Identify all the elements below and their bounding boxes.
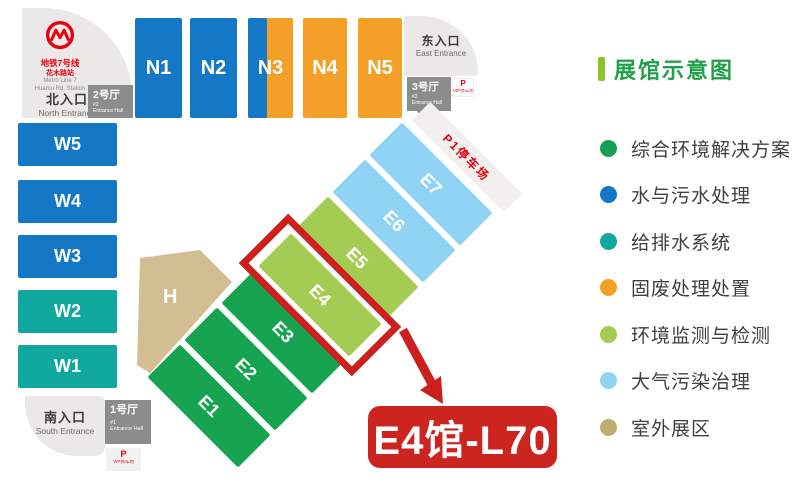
vip-parking-south: P VIP停车场 bbox=[106, 448, 141, 471]
legend-dot bbox=[600, 140, 617, 157]
legend-dot bbox=[600, 279, 617, 296]
highlight-label: E4馆-L70 bbox=[368, 406, 557, 468]
hall-n3: N3 bbox=[248, 18, 293, 118]
entrance-hall-1: 1号厅 #1 Entrance Hall bbox=[105, 400, 151, 444]
legend-title-bar bbox=[598, 57, 605, 81]
entrance-hall-2: 2号厅 #2 Entrance Hall bbox=[88, 85, 133, 118]
legend-item: 给排水系统 bbox=[600, 226, 791, 256]
hall-n4: N4 bbox=[303, 18, 347, 118]
legend-title: 展馆示意图 bbox=[598, 53, 734, 85]
hall-w5: W5 bbox=[18, 123, 117, 166]
metro-line-name-en: Metro Line 7 bbox=[28, 78, 92, 86]
legend-dot bbox=[600, 233, 617, 250]
south-entrance-label: 南入口 South Entrance bbox=[25, 410, 105, 437]
legend-item: 室外展区 bbox=[600, 412, 791, 442]
legend-item: 综合环境解决方案 bbox=[600, 133, 791, 163]
hall-w3: W3 bbox=[18, 235, 117, 278]
legend-dot bbox=[600, 186, 617, 203]
legend-dot bbox=[600, 419, 617, 436]
east-entrance-label: 东入口 East Entrance bbox=[404, 34, 478, 59]
legend-item: 水与污水处理 bbox=[600, 180, 791, 210]
hall-n1: N1 bbox=[135, 18, 182, 118]
vip-parking-north: P VIP停车场 bbox=[452, 78, 474, 97]
hall-n5: N5 bbox=[358, 18, 402, 118]
metro-station-name: 花木路站 bbox=[28, 69, 92, 78]
exhibition-map: 地铁7号线 花木路站 Metro Line 7 Huamu Rd. Statio… bbox=[0, 0, 800, 494]
metro-station-block: 地铁7号线 花木路站 Metro Line 7 Huamu Rd. Statio… bbox=[28, 20, 92, 94]
hall-w1: W1 bbox=[18, 345, 117, 388]
east-entrance-area: 东入口 East Entrance bbox=[404, 16, 478, 76]
legend: 综合环境解决方案 水与污水处理 给排水系统 固废处理处置 环境监测与检测 大气污… bbox=[600, 133, 791, 442]
hall-w2: W2 bbox=[18, 290, 117, 333]
south-entrance-area: 南入口 South Entrance bbox=[25, 396, 105, 456]
hall-w4: W4 bbox=[18, 180, 117, 223]
shanghai-metro-logo-icon bbox=[45, 20, 75, 50]
legend-item: 大气污染治理 bbox=[600, 366, 791, 396]
legend-dot bbox=[600, 326, 617, 343]
legend-dot bbox=[600, 372, 617, 389]
legend-item: 固废处理处置 bbox=[600, 273, 791, 303]
metro-line-name: 地铁7号线 bbox=[28, 58, 92, 69]
hall-n2: N2 bbox=[190, 18, 237, 118]
legend-item: 环境监测与检测 bbox=[600, 319, 791, 349]
